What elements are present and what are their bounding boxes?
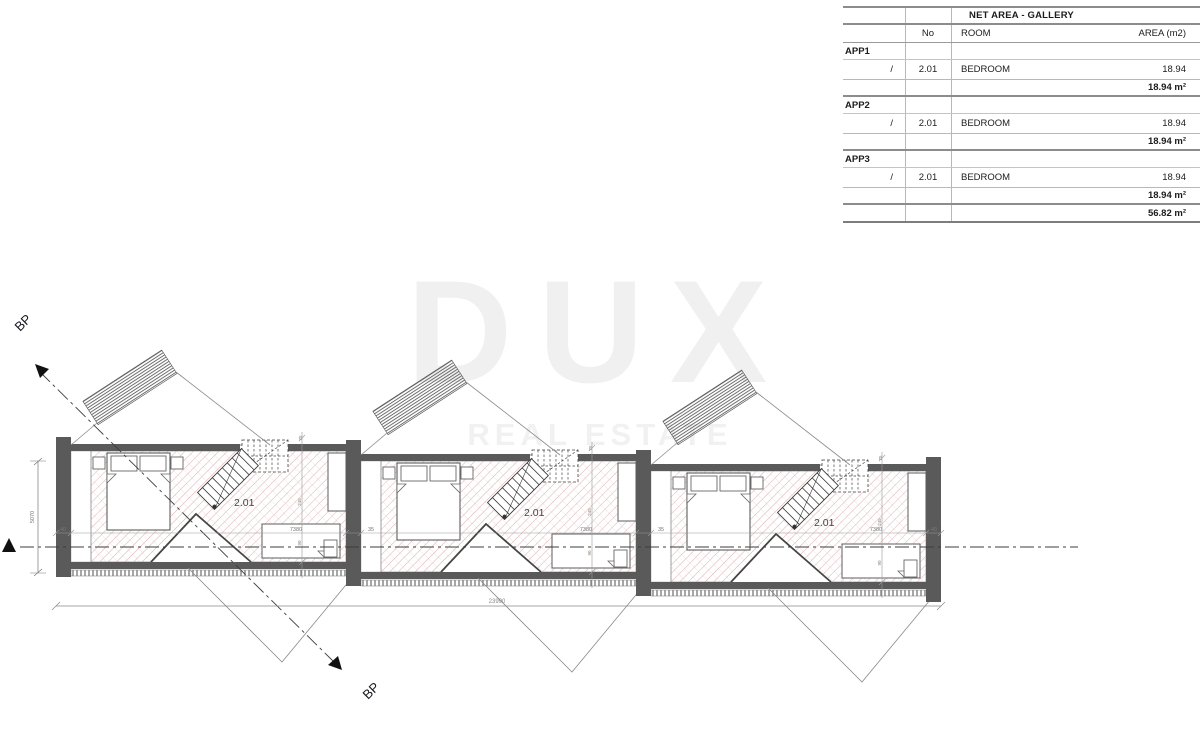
dim-depth: 5070 — [30, 511, 36, 523]
section-arrow-icon — [35, 364, 49, 378]
cell-area: 18.94 — [1105, 172, 1200, 183]
app-subtotal: 18.94 m² — [843, 188, 1200, 205]
table-header-row: No ROOM AREA (m2) — [843, 25, 1200, 43]
cell-room: BEDROOM — [951, 118, 1105, 129]
cell-area: 18.94 — [1105, 118, 1200, 129]
table-row: / 2.01 BEDROOM 18.94 — [843, 114, 1200, 134]
app-subtotal: 18.94 m² — [843, 80, 1200, 97]
dim-unit-width: 7380 — [290, 527, 302, 533]
section-label-top: BP — [12, 311, 35, 334]
dim-wall-right: 40 — [931, 527, 937, 533]
header-no: No — [905, 28, 951, 39]
cell-slash: / — [843, 64, 905, 75]
header-area: AREA (m2) — [1105, 28, 1200, 39]
header-room: ROOM — [951, 28, 1105, 39]
app-label: APP3 — [843, 151, 1200, 168]
app-label: APP2 — [843, 97, 1200, 114]
table-grand-total: 56.82 m² — [843, 205, 1200, 223]
floorplan-page: DUX REAL ESTATE — [0, 0, 1200, 741]
dim-wall-mid: 35 — [658, 527, 664, 533]
cell-no: 2.01 — [905, 64, 951, 75]
dim-unit-width: 7380 — [580, 527, 592, 533]
dim-wall-mid: 35 — [368, 527, 374, 533]
cell-slash: / — [843, 172, 905, 183]
section-label-bottom: BP — [360, 679, 383, 702]
table-row: / 2.01 BEDROOM 18.94 — [843, 168, 1200, 188]
cell-room: BEDROOM — [951, 64, 1105, 75]
app-subtotal: 18.94 m² — [843, 134, 1200, 151]
app-label: APP1 — [843, 43, 1200, 60]
apartment-unit-2 — [361, 360, 650, 672]
cell-no: 2.01 — [905, 118, 951, 129]
cell-slash: / — [843, 118, 905, 129]
dim-total-width: 23990 — [489, 599, 506, 605]
net-area-table: NET AREA - GALLERY No ROOM AREA (m2) APP… — [843, 6, 1200, 223]
table-title: NET AREA - GALLERY — [843, 8, 1200, 25]
dim-wall-left: 40 — [60, 527, 66, 533]
dim-unit-width: 7380 — [870, 527, 882, 533]
cell-area: 18.94 — [1105, 64, 1200, 75]
cell-no: 2.01 — [905, 172, 951, 183]
apartment-unit-3 — [651, 370, 940, 682]
table-row: / 2.01 BEDROOM 18.94 — [843, 60, 1200, 80]
apartment-unit-1 — [71, 350, 360, 662]
level-marker-icon — [2, 538, 16, 552]
cell-room: BEDROOM — [951, 172, 1105, 183]
